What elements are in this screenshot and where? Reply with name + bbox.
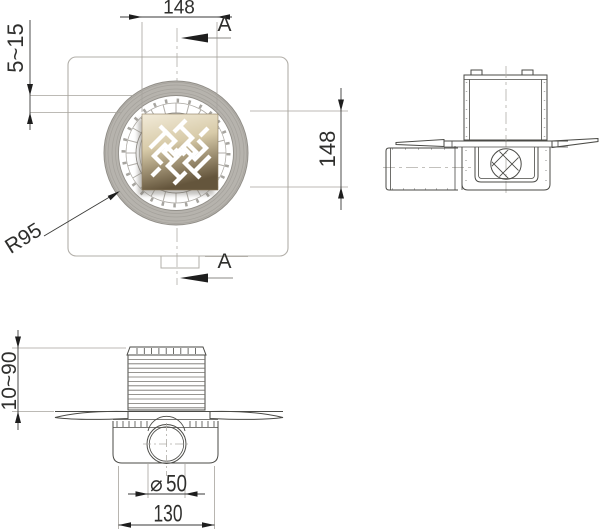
outlet-pipe-side (386, 146, 462, 190)
diameter-symbol: ⌀ (150, 472, 163, 496)
section-arrow-top (181, 34, 208, 43)
plan-view (68, 28, 288, 285)
section-label-bottom: A (217, 250, 231, 273)
riser-ribs (128, 359, 205, 407)
section-arrow-bottom (180, 274, 208, 283)
side-section-view (383, 66, 598, 211)
wing-right-side (552, 139, 598, 148)
flange-front (55, 411, 283, 419)
radius-leader (44, 192, 118, 236)
dim-grate-height-label: 148 (315, 131, 340, 168)
front-section-view (55, 347, 283, 476)
wing-right-front (210, 411, 283, 419)
dim-body-width-label: 130 (154, 501, 183, 528)
technical-drawing-canvas: 148 A A 5~15 R95 148 10~90 ⌀ 50 130 (0, 0, 600, 530)
outlet-circle (143, 423, 190, 476)
wing-left-front (55, 411, 128, 419)
body-front (113, 416, 218, 463)
floor-drain-drawing: 148 A A 5~15 R95 148 10~90 ⌀ 50 130 (0, 0, 600, 530)
riser-front (127, 347, 206, 410)
riser-side (464, 70, 547, 140)
decorative-grate (142, 114, 218, 190)
dim-outlet-value-label: 50 (166, 471, 187, 498)
dim-depth-range-label: 10~90 (0, 352, 21, 411)
dim-collar-range-label: 5~15 (3, 23, 28, 73)
dim-radius-label: R95 (1, 219, 46, 259)
outlet-tab (161, 256, 199, 268)
dim-grate-width-label: 148 (163, 0, 195, 19)
section-label-top: A (217, 13, 231, 36)
wing-left-side (396, 140, 444, 147)
